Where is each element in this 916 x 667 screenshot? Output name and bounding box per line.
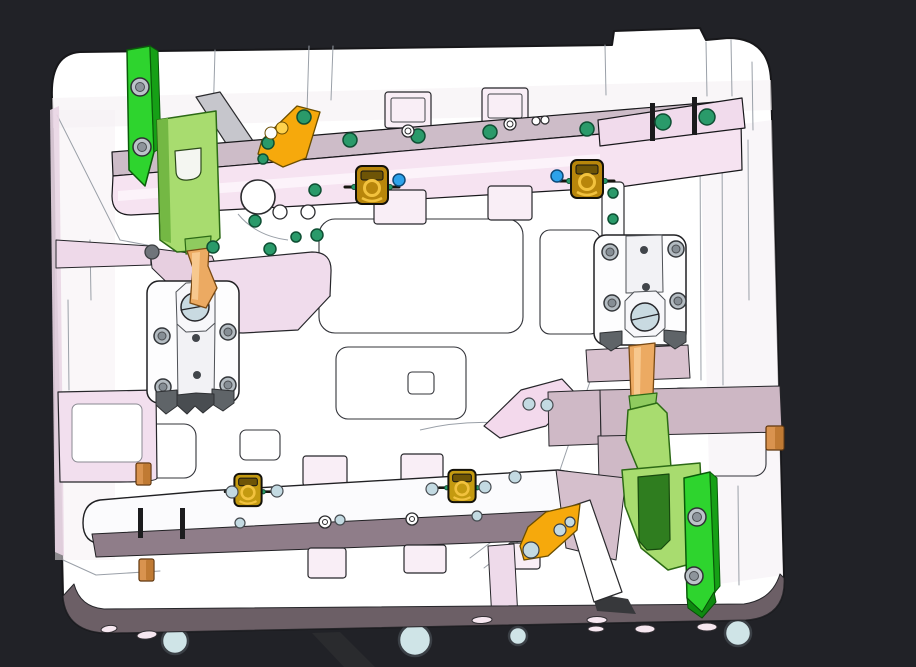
cad-canvas[interactable]	[0, 0, 916, 667]
clamp-cylinder-right[interactable]	[594, 235, 686, 351]
cad-3d-viewport[interactable]	[0, 0, 916, 667]
